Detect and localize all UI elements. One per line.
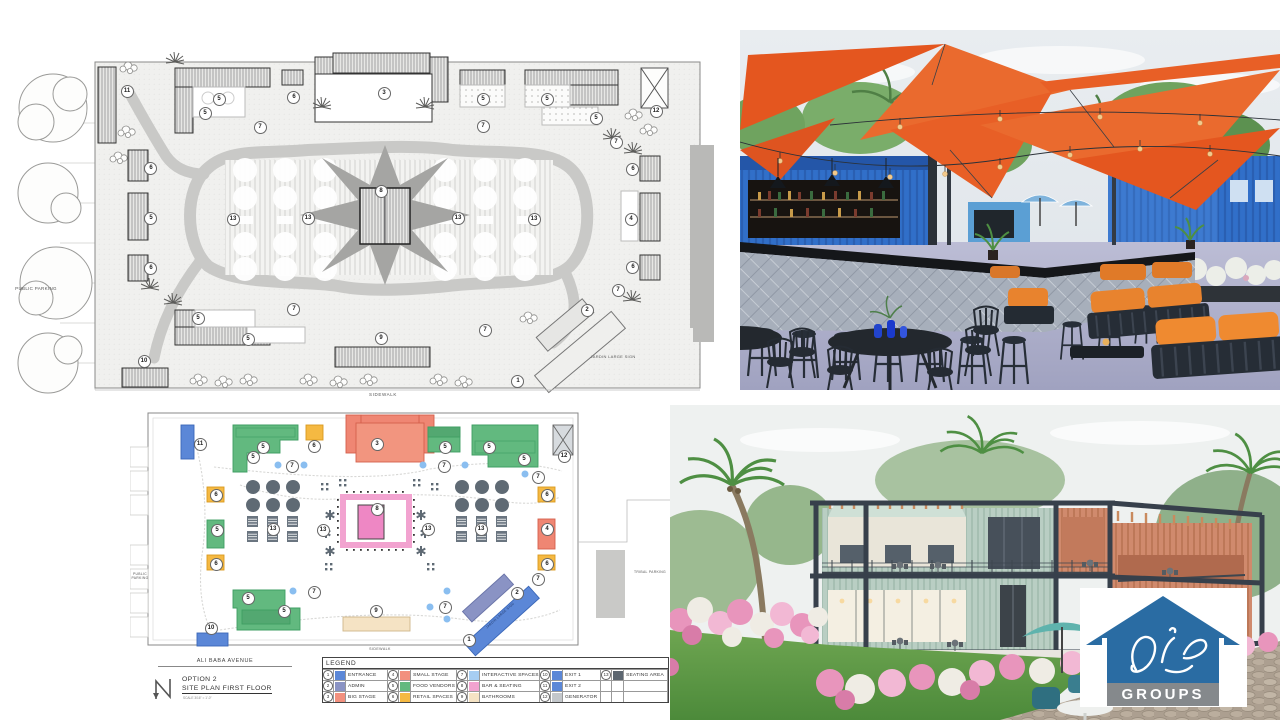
legend-number: 10 [540,669,551,680]
plan-marker-12: 12 [558,450,571,463]
cp-sidewalk-label: SIDEWALK [358,647,402,651]
plan-marker-4: 4 [625,213,638,226]
legend-swatch [468,669,480,680]
legend-number: 5 [388,680,399,691]
cp-public-parking-label: PUBLIC PARKING [130,573,150,581]
plan-marker-12: 12 [650,105,663,118]
plan-marker-5: 5 [541,93,554,106]
plan-marker-5: 5 [211,524,224,537]
legend-swatch [334,669,346,680]
bw-jardin-sign-label: JARDIN LARGE SIGN [574,355,652,360]
legend-grid: 1ENTRANCE4SMALL STAGE7INTERACTIVE SPACES… [323,669,668,702]
legend-number: 4 [388,669,399,680]
plan-marker-7: 7 [477,120,490,133]
legend-swatch [612,669,624,680]
plan-marker-5: 5 [518,453,531,466]
legend-number: 7 [457,669,468,680]
legend-label: EXIT 2 [563,680,601,691]
plan-marker-13: 13 [317,524,330,537]
legend-title: LEGEND [323,658,668,669]
plan-marker-5: 5 [439,441,452,454]
plan-marker-13: 13 [227,213,240,226]
legend-number: 2 [323,680,334,691]
bar-render-graphic [740,30,1280,390]
legend-number: 6 [388,691,399,702]
plan-legend: LEGEND 1ENTRANCE4SMALL STAGE7INTERACTIVE… [322,657,669,703]
groups-logo: GROUPS [1080,588,1247,707]
plan-marker-6: 6 [210,489,223,502]
plan-marker-6: 6 [144,262,157,275]
plan-marker-5: 5 [242,592,255,605]
plan-marker-13: 13 [267,523,280,536]
scale-note: SCALE 3/16" = 1'-0" [183,696,212,700]
legend-swatch [468,691,480,702]
plan-marker-7: 7 [438,460,451,473]
plan-marker-4: 4 [541,523,554,536]
north-arrow-icon [152,675,176,703]
logo-house-icon [1080,588,1247,684]
legend-label: GENERATOR [563,691,601,702]
legend-number: 13 [601,669,612,680]
legend-label: ENTRANCE [346,669,388,680]
plan-marker-6: 6 [144,162,157,175]
legend-label: FOOD VENDORS [411,680,457,691]
legend-swatch [399,669,411,680]
plan-marker-7: 7 [532,471,545,484]
plan-marker-5: 5 [590,112,603,125]
plan-marker-7: 7 [612,284,625,297]
plan-marker-5: 5 [477,93,490,106]
legend-number: 8 [457,680,468,691]
container-bar-render [740,30,1280,390]
plan-marker-5: 5 [192,312,205,325]
plan-marker-5: 5 [278,605,291,618]
plan-marker-7: 7 [254,121,267,134]
legend-swatch [551,691,563,702]
plan-marker-13: 13 [475,523,488,536]
cp-tribal-parking-label: TRIBAL PARKING [632,571,668,575]
legend-label: SMALL STAGE [411,669,457,680]
legend-label: INTERACTIVE SPACES [480,669,540,680]
plan-marker-7: 7 [287,303,300,316]
plan-marker-9: 9 [370,605,383,618]
plan-marker-13: 13 [302,212,315,225]
legend-swatch [551,680,563,691]
plan-marker-11: 11 [194,438,207,451]
plan-marker-10: 10 [138,355,151,368]
legend-swatch [334,691,346,702]
legend-swatch [334,680,346,691]
legend-swatch [551,669,563,680]
plan-marker-13: 13 [422,523,435,536]
plan-marker-7: 7 [439,601,452,614]
plan-marker-1: 1 [511,375,524,388]
plan-marker-6: 6 [287,91,300,104]
legend-label: BIG STAGE [346,691,388,702]
plan-marker-5: 5 [247,451,260,464]
legend-label: RETAIL SPACES [411,691,457,702]
bw-site-plan-image: 115563555127776654661313813137775591021 … [8,28,730,406]
legend-number: 12 [540,691,551,702]
plan-marker-7: 7 [286,460,299,473]
plan-marker-7: 7 [532,573,545,586]
bw-sidewalk-label: SIDEWALK [348,392,418,397]
legend-number: 1 [323,669,334,680]
legend-number: 3 [323,691,334,702]
plan-marker-6: 6 [626,261,639,274]
sheet-title: SITE PLAN FIRST FLOOR [182,685,272,694]
plan-marker-5: 5 [213,93,226,106]
plan-marker-6: 6 [541,558,554,571]
legend-swatch [399,680,411,691]
plan-marker-8: 8 [371,503,384,516]
plan-marker-8: 8 [375,185,388,198]
legend-swatch [399,691,411,702]
plan-marker-11: 11 [121,85,134,98]
plan-marker-13: 13 [528,213,541,226]
bw-public-parking-label: PUBLIC PARKING [12,286,60,291]
legend-number: 11 [540,680,551,691]
plan-marker-3: 3 [378,87,391,100]
color-site-plan-image: 115563555127776654131381313667775591021 … [130,405,670,720]
plan-marker-5: 5 [199,107,212,120]
plan-marker-7: 7 [610,136,623,149]
plan-marker-1: 1 [463,634,476,647]
plan-marker-13: 13 [452,212,465,225]
plan-marker-2: 2 [581,304,594,317]
legend-label: EXIT 1 [563,669,601,680]
plan-marker-10: 10 [205,622,218,635]
plan-marker-6: 6 [308,440,321,453]
presentation-slide: { "bw_plan": { "labels": { "public_parki… [0,0,1280,720]
plan-marker-7: 7 [308,586,321,599]
plan-marker-6: 6 [541,489,554,502]
avenue-label: ALI BABA AVENUE [158,658,292,667]
plan-marker-6: 6 [626,163,639,176]
plan-marker-7: 7 [479,324,492,337]
legend-swatch [468,680,480,691]
plan-marker-5: 5 [242,333,255,346]
legend-number: 9 [457,691,468,702]
plan-marker-3: 3 [371,438,384,451]
bw-plan-markers: 115563555127776654661313813137775591021 [8,28,730,406]
legend-label: BATHROOMS [480,691,540,702]
plan-marker-9: 9 [375,332,388,345]
legend-label: ADMIN [346,680,388,691]
plan-marker-5: 5 [144,212,157,225]
plan-marker-5: 5 [257,441,270,454]
plan-marker-5: 5 [483,441,496,454]
option-label: OPTION 2 [182,676,217,683]
legend-label: BAR & SEATING [480,680,540,691]
plan-marker-6: 6 [210,558,223,571]
legend-label: SEATING AREA [624,669,668,680]
logo-banner: GROUPS [1107,683,1219,706]
